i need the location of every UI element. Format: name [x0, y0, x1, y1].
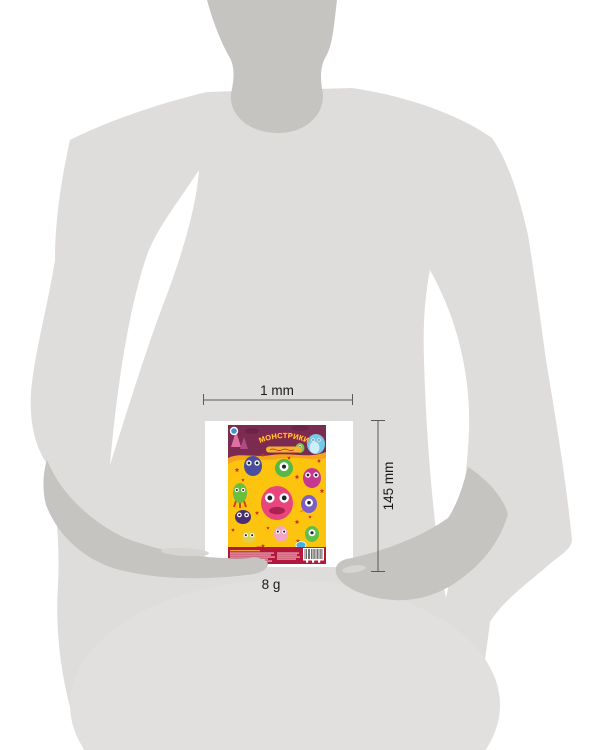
monster-goggles-ball-monster: [235, 510, 251, 524]
header-blue-monster-belly: [310, 442, 320, 454]
monster-magenta-furry-monster: [303, 468, 321, 488]
packaging-symbols: [306, 561, 320, 563]
monster-pink-big-monster: [261, 486, 293, 520]
weight-label: 8 g: [262, 577, 281, 592]
header-blue-monster-pupil: [312, 439, 313, 440]
height-label: 145 mm: [381, 462, 396, 511]
scene-canvas: МОНСТРИКИ: [0, 0, 600, 750]
width-label: 1 mm: [260, 383, 294, 398]
header-texture: [291, 425, 309, 431]
monster-green-robot-monster: [305, 526, 319, 542]
monster-pink-bunny-monster: [274, 526, 288, 542]
monster-yellow-spider-monster: [242, 531, 256, 543]
monster-green-cyclops-monster: [275, 459, 293, 477]
monster-purple-octopus-monster: [301, 495, 317, 513]
header-texture: [245, 428, 259, 434]
monster-green-alien-monster: [233, 483, 247, 508]
product-card: МОНСТРИКИ: [205, 421, 353, 567]
size-reference-figure: МОНСТРИКИ: [0, 0, 600, 750]
publisher-logo-icon: [231, 428, 237, 434]
human-silhouette: [31, 0, 572, 750]
monster-blue-furry-monster: [244, 456, 262, 476]
header-blue-monster-pupil: [318, 439, 319, 440]
